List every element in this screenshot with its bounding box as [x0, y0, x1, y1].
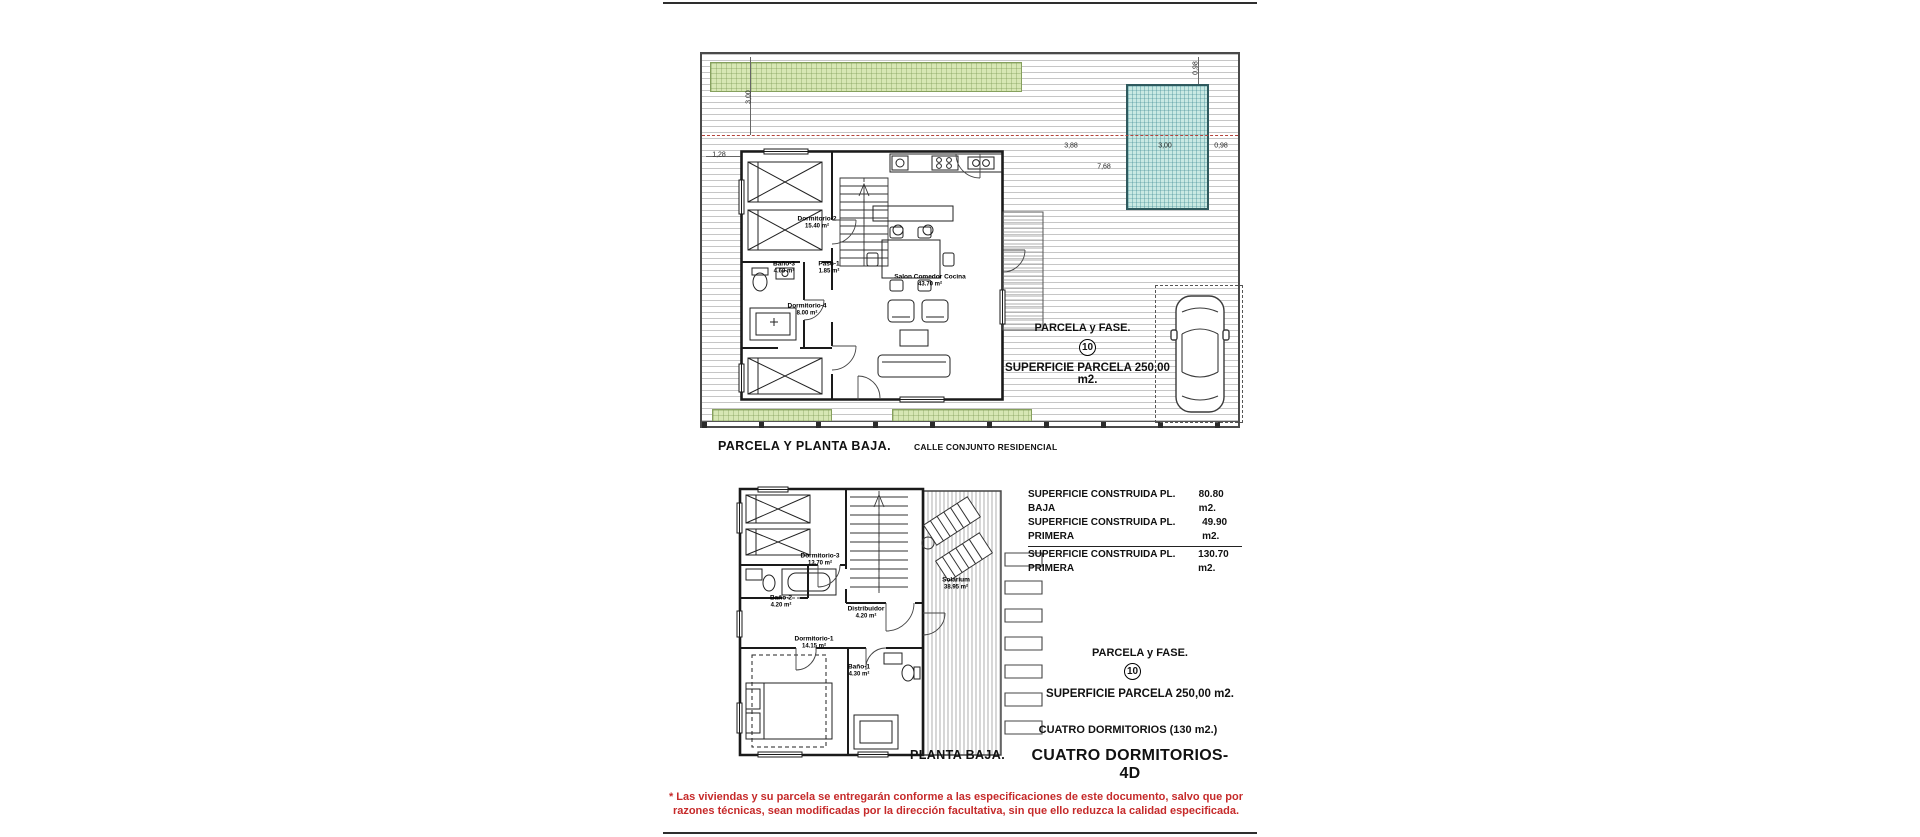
room-label-dormitorio3: Dormitorio-3 13.70 m² [801, 553, 840, 568]
room-name: Baño-1 [848, 664, 870, 671]
pergola-slats [1005, 553, 1042, 734]
room-name: Dormitorio-2 [798, 216, 837, 223]
room-name: Dormitorio-1 [795, 636, 834, 643]
summary-label: SUPERFICIE CONSTRUIDA PL. BAJA [1028, 488, 1199, 516]
room-area: 8.00 m² [788, 310, 827, 317]
info-parcel-area-label: SUPERFICIE PARCELA 250,00 m2. [1040, 688, 1240, 700]
room-name: Solarium [942, 577, 970, 584]
summary-label: SUPERFICIE CONSTRUIDA PL. PRIMERA [1028, 516, 1202, 544]
room-area: 1.85 m² [818, 268, 839, 275]
parking-space [1155, 285, 1243, 423]
dimension-label: 3,00 [1158, 143, 1172, 150]
summary-value: 49.90 m2. [1202, 516, 1242, 544]
room-area: 13.70 m² [801, 560, 840, 567]
parcel-area-label: SUPERFICIE PARCELA 250,00 m2. [995, 362, 1180, 386]
room-area: 4.20 m² [848, 613, 885, 620]
summary-value: 80.80 m2. [1199, 488, 1242, 516]
room-label-salon: Salon Comedor Cocina 43.70 m² [894, 274, 966, 289]
dimension-label: 3,00 [746, 90, 753, 104]
summary-row-total: SUPERFICIE CONSTRUIDA PL. PRIMERA 130.70… [1028, 546, 1242, 576]
summary-label: SUPERFICIE CONSTRUIDA PL. PRIMERA [1028, 548, 1198, 576]
room-name: Paso-1 [818, 261, 839, 268]
room-name: Dormitorio-4 [788, 303, 827, 310]
dimension-label: 3,88 [1064, 143, 1078, 150]
room-area: 4.60 m² [773, 268, 795, 275]
info-parcel-fase-label: PARCELA y FASE. [1050, 647, 1230, 659]
room-name: Salon Comedor Cocina [894, 274, 966, 281]
parcel-number-badge: 10 [1079, 339, 1096, 356]
summary-row: SUPERFICIE CONSTRUIDA PL. PRIMERA 49.90 … [1028, 516, 1242, 544]
summary-value: 130.70 m2. [1198, 548, 1242, 576]
street-label: CALLE CONJUNTO RESIDENCIAL [914, 442, 1057, 452]
floor-plan-title: PLANTA BAJA. [910, 748, 1005, 762]
lawn-strip-north [710, 62, 1022, 92]
room-name: Dormitorio-3 [801, 553, 840, 560]
dimension-label: 0,98 [1214, 143, 1228, 150]
dimension-label: 7,68 [1097, 164, 1111, 171]
dimension-label: 0,98 [1193, 61, 1200, 75]
disclaimer-text: * Las viviendas y su parcela se entregar… [650, 790, 1262, 819]
room-label-paso1: Paso-1 1.85 m² [818, 261, 839, 276]
room-area: 15.40 m² [798, 223, 837, 230]
room-label-bano3: Baño-3 4.60 m² [773, 261, 795, 276]
room-label-dormitorio2: Dormitorio-2 15.40 m² [798, 216, 837, 231]
page-top-border [663, 2, 1257, 4]
info-parcel-number-badge: 10 [1124, 663, 1141, 680]
room-label-dormitorio1: Dormitorio-1 14.15 m² [795, 636, 834, 651]
room-area: 38.95 m² [942, 584, 970, 591]
room-name: Baño-2 [770, 595, 792, 602]
site-plan-title: PARCELA Y PLANTA BAJA. [718, 439, 891, 453]
setback-line [702, 135, 1238, 136]
parcel-fase-label: PARCELA y FASE. [1020, 322, 1145, 334]
room-area: 4.20 m² [770, 602, 792, 609]
type-code-line: CUATRO DORMITORIOS- 4D [1020, 747, 1240, 783]
bedrooms-line: CUATRO DORMITORIOS (130 m2.) [1028, 724, 1228, 736]
room-area: 4.30 m² [848, 671, 870, 678]
room-label-bano1: Baño-1 4.30 m² [848, 664, 870, 679]
room-name: Distribuidor [848, 606, 885, 613]
page-bottom-border [663, 832, 1257, 834]
car-icon [1156, 286, 1244, 424]
built-surface-summary: SUPERFICIE CONSTRUIDA PL. BAJA 80.80 m2.… [1028, 488, 1242, 576]
dimension-label: 1,28 [712, 152, 726, 159]
room-area: 14.15 m² [795, 643, 834, 650]
room-label-bano2: Baño-2 4.20 m² [770, 595, 792, 610]
room-label-distribuidor: Distribuidor 4.20 m² [848, 606, 885, 621]
room-area: 43.70 m² [894, 281, 966, 288]
room-name: Baño-3 [773, 261, 795, 268]
room-label-solarium: Solarium 38.95 m² [942, 577, 970, 592]
first-floor-plan-drawing [738, 483, 1045, 758]
plan-document-page: 1,28 3,00 3,88 3,00 0,98 7,68 0,98 Dormi… [0, 0, 1920, 837]
room-label-dormitorio4: Dormitorio-4 8.00 m² [788, 303, 827, 318]
summary-row: SUPERFICIE CONSTRUIDA PL. BAJA 80.80 m2. [1028, 488, 1242, 516]
